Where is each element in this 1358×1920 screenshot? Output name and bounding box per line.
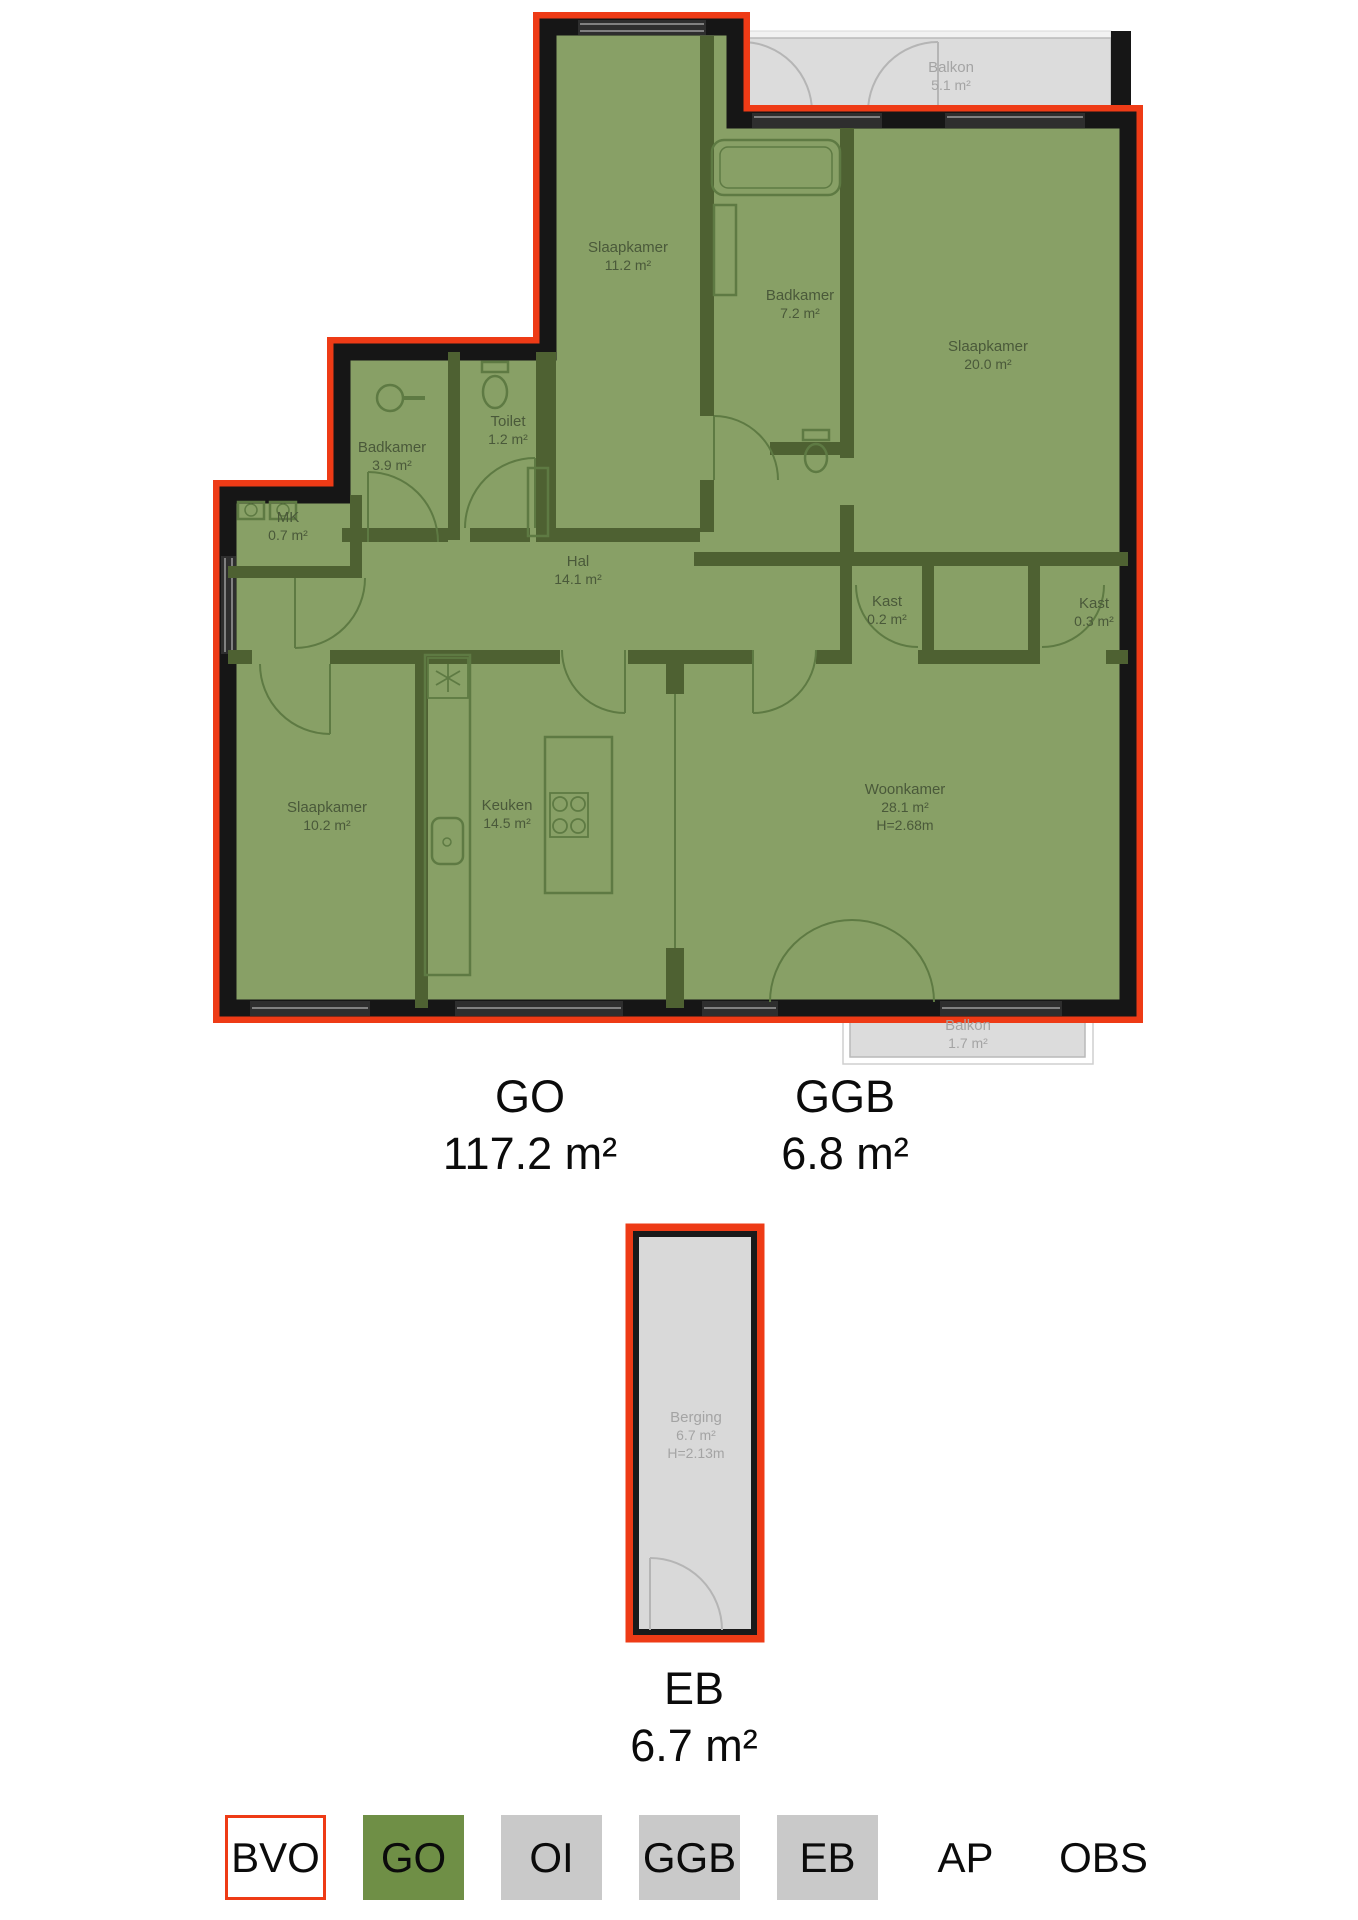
floor-plan-drawing xyxy=(0,0,1358,1920)
legend-item-bvo: BVO xyxy=(225,1815,326,1900)
legend-item-ggb: GGB xyxy=(639,1815,740,1900)
total-ggb: GGB6.8 m² xyxy=(781,1068,909,1182)
legend-item-obs: OBS xyxy=(1053,1815,1154,1900)
room-label-woonkamer: Woonkamer28.1 m² H=2.68m xyxy=(865,780,946,835)
room-label-hal: Hal14.1 m² xyxy=(554,552,601,589)
legend-item-eb: EB xyxy=(777,1815,878,1900)
room-label-slaapkamer-3: Slaapkamer10.2 m² xyxy=(287,798,367,835)
room-label-kast-1: Kast0.2 m² xyxy=(867,592,907,629)
legend-item-go: GO xyxy=(363,1815,464,1900)
total-go: GO117.2 m² xyxy=(443,1068,617,1182)
total-eb: EB6.7 m² xyxy=(630,1660,758,1774)
room-label-slaapkamer-1: Slaapkamer11.2 m² xyxy=(588,238,668,275)
floorplan-page: Slaapkamer11.2 m² Badkamer7.2 m² Slaapka… xyxy=(0,0,1358,1920)
room-label-badkamer-1: Badkamer7.2 m² xyxy=(766,286,834,323)
room-label-kast-2: Kast0.3 m² xyxy=(1074,594,1114,631)
room-label-berging: Berging6.7 m² H=2.13m xyxy=(667,1408,724,1463)
room-label-badkamer-2: Badkamer3.9 m² xyxy=(358,438,426,475)
room-label-balkon-bottom: Balkon1.7 m² xyxy=(945,1016,991,1053)
legend-item-ap: AP xyxy=(915,1815,1016,1900)
bvo-outline xyxy=(228,27,1128,1008)
legend: BVO GO OI GGB EB AP OBS xyxy=(225,1815,1154,1900)
room-label-keuken: Keuken14.5 m² xyxy=(482,796,533,833)
room-label-slaapkamer-2: Slaapkamer20.0 m² xyxy=(948,337,1028,374)
room-label-balkon-top: Balkon5.1 m² xyxy=(928,58,974,95)
legend-item-oi: OI xyxy=(501,1815,602,1900)
room-label-mk: MK0.7 m² xyxy=(268,508,308,545)
exterior-walls xyxy=(228,27,1128,1008)
room-label-toilet: Toilet1.2 m² xyxy=(488,412,528,449)
